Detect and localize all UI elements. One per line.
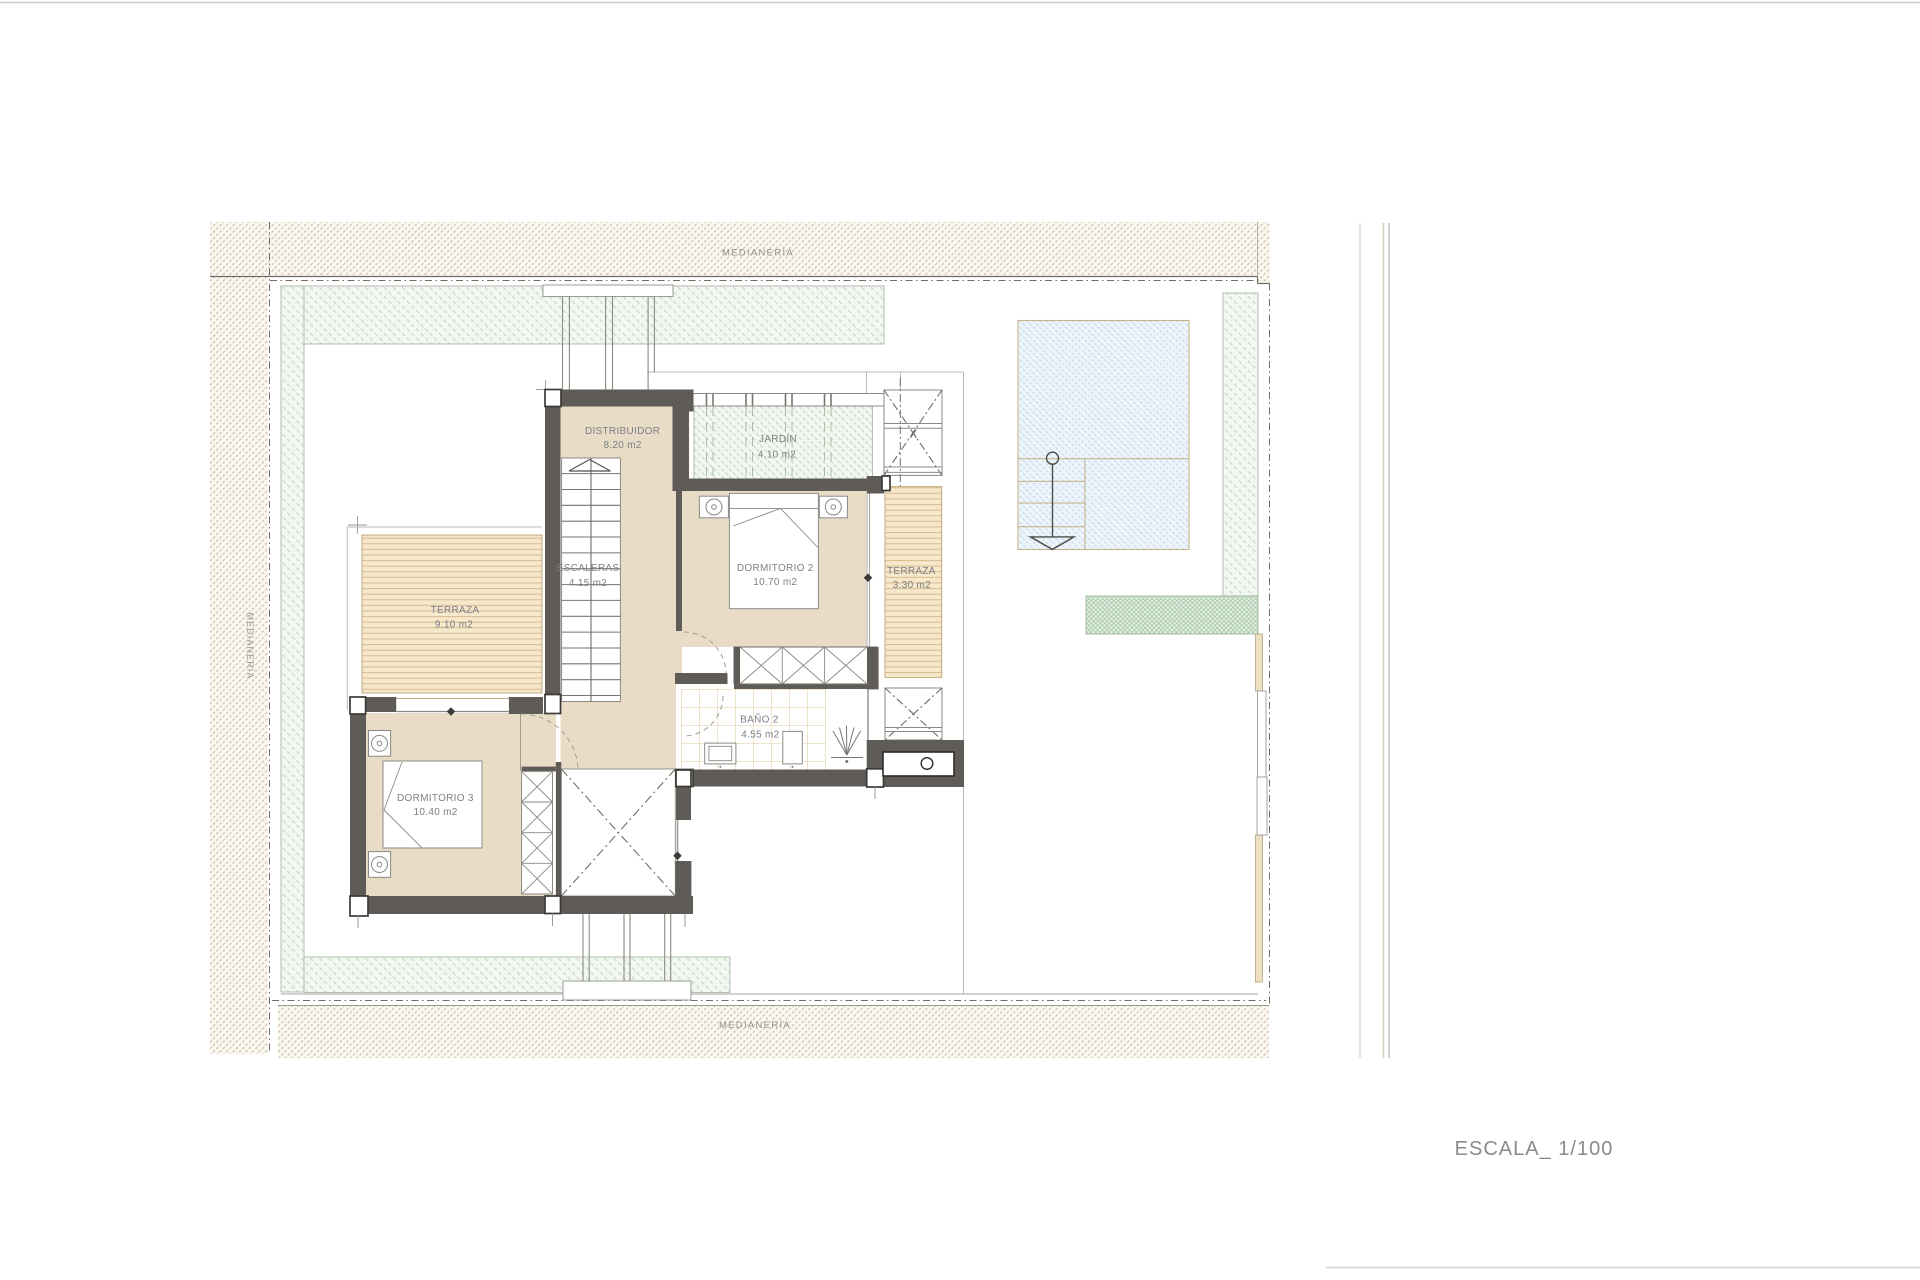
svg-text:3.30 m2: 3.30 m2 <box>893 580 931 591</box>
svg-text:TERRAZA: TERRAZA <box>887 566 936 577</box>
svg-text:ESCALA_ 1/100: ESCALA_ 1/100 <box>1455 1138 1614 1160</box>
svg-text:DORMITORIO 2: DORMITORIO 2 <box>737 563 814 574</box>
svg-text:MEDIANERÍA: MEDIANERÍA <box>719 1020 791 1031</box>
svg-text:9.10 m2: 9.10 m2 <box>435 619 473 630</box>
svg-text:MEDIANERÍA: MEDIANERÍA <box>245 612 255 679</box>
svg-text:DISTRIBUIDOR: DISTRIBUIDOR <box>585 426 660 437</box>
svg-text:BAÑO 2: BAÑO 2 <box>740 713 779 726</box>
svg-text:DORMITORIO 3: DORMITORIO 3 <box>397 793 474 804</box>
svg-text:X: X <box>910 429 918 441</box>
svg-text:10.70 m2: 10.70 m2 <box>753 577 797 588</box>
svg-text:8.20 m2: 8.20 m2 <box>603 440 641 451</box>
svg-text:10.40 m2: 10.40 m2 <box>414 807 458 818</box>
svg-text:TERRAZA: TERRAZA <box>431 605 480 616</box>
svg-text:MEDIANERÍA: MEDIANERÍA <box>722 248 794 259</box>
svg-text:ESCALERAS: ESCALERAS <box>557 563 620 574</box>
svg-text:4.55 m2: 4.55 m2 <box>741 730 779 741</box>
svg-text:JARDÍN: JARDÍN <box>759 432 797 445</box>
svg-text:4.10 m2: 4.10 m2 <box>758 450 796 461</box>
svg-text:4.15 m2: 4.15 m2 <box>569 578 607 589</box>
